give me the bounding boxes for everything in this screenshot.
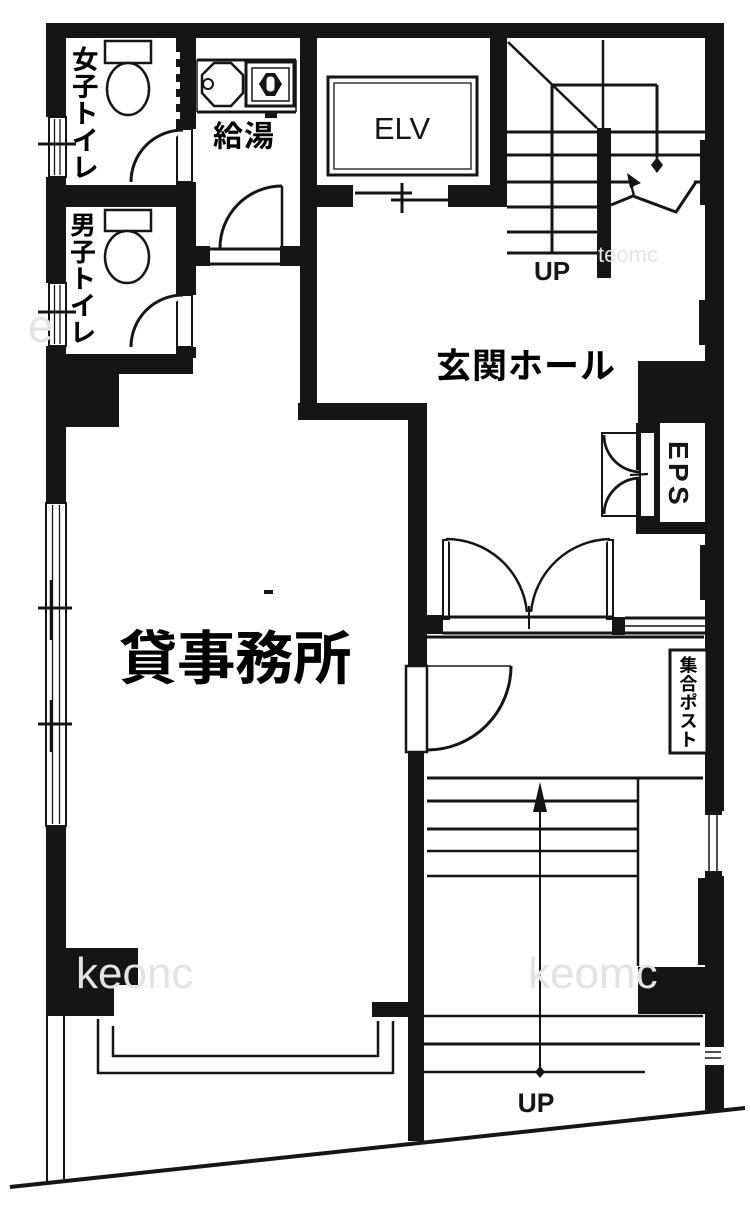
svg-text:UP: UP	[534, 256, 570, 286]
svg-text:UP: UP	[518, 1088, 555, 1118]
svg-text:ELV: ELV	[374, 111, 431, 146]
svg-text:keonc: keonc	[76, 949, 193, 998]
svg-text:S: S	[663, 486, 694, 505]
svg-text:P: P	[663, 463, 694, 482]
svg-text:teomc: teomc	[598, 242, 658, 267]
svg-text:e: e	[28, 300, 54, 352]
svg-text:E: E	[663, 441, 694, 460]
svg-text:keomc: keomc	[528, 949, 658, 998]
